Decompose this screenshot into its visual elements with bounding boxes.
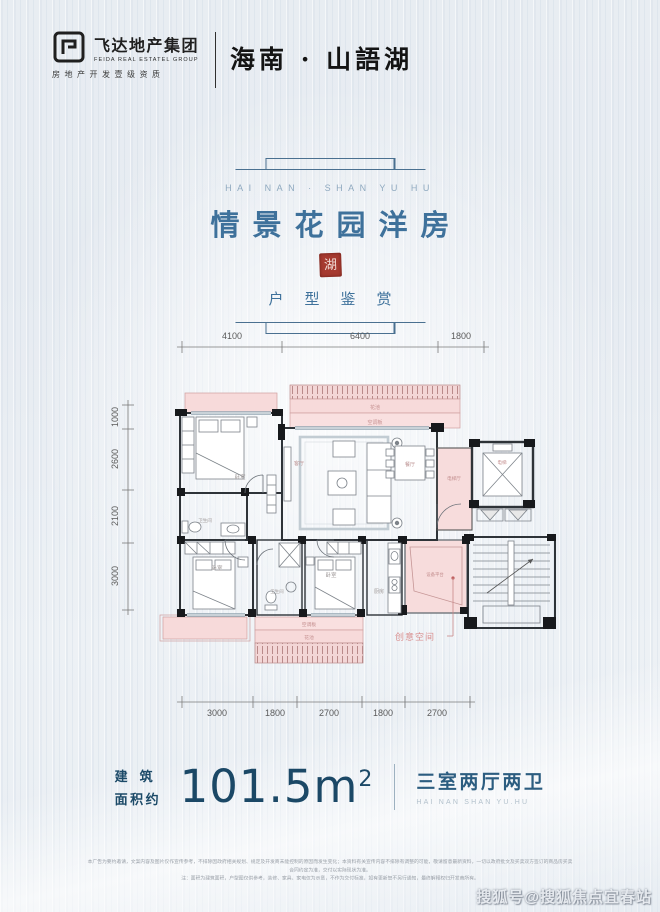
developer-name-en: FEIDA REAL ESTATEL GROUP	[94, 57, 199, 63]
creative-space-label: 创意空间	[395, 631, 435, 642]
spec-bar: 建筑 面积约 101.5m2 三室两厅两卫 HAI NAN SHAN YU.HU	[0, 760, 660, 813]
coffee-table-icon	[328, 471, 356, 495]
dim-left-2: 2600	[110, 449, 120, 469]
watermark: 搜狐号@搜狐焦点宜春站	[476, 886, 652, 907]
layout-type: 三室两厅两卫	[416, 767, 545, 794]
dim-bottom-4: 1800	[373, 708, 393, 718]
area-label-2: 面积约	[115, 789, 165, 808]
page-title: 情景花园洋房	[197, 202, 462, 244]
developer-logo-block: 飞达地产集团 FEIDA REAL ESTATEL GROUP 房地产开发壹级资…	[52, 30, 199, 80]
elevator-icon	[477, 444, 531, 521]
poster-page: 飞达地产集团 FEIDA REAL ESTATEL GROUP 房地产开发壹级资…	[0, 0, 660, 912]
bed-icon-2	[185, 542, 248, 609]
project-brand: 海南 · 山語湖	[230, 40, 413, 76]
room-label-elevator-hall: 电梯厅	[447, 475, 461, 482]
room-label-bedroom-2: 卧室	[211, 564, 223, 572]
disclaimer-line-2: 注：面积为建筑面积，户型图仅供参考，装修、家具、家电仅为示意，不作为交付标准，如…	[87, 875, 573, 883]
label-equipment-platform: 设备平台	[426, 571, 444, 578]
dim-left-1: 1000	[110, 407, 120, 427]
dim-bottom-2: 1800	[265, 708, 285, 718]
dim-bottom-1: 3000	[207, 708, 227, 718]
header-divider	[215, 32, 216, 88]
elevator-hall-zone	[437, 448, 472, 530]
room-label-bath-2: 卫生间	[270, 588, 283, 595]
spec-divider	[394, 764, 395, 810]
area-label-1: 建筑	[115, 766, 165, 785]
balcony-strip	[163, 617, 247, 639]
shoe-cabinet-icon	[267, 475, 276, 513]
bracket-ornament-top	[235, 158, 425, 170]
title-block: HAI NAN · SHAN YU HU 情景花园洋房 湖 户型鉴赏	[197, 158, 462, 334]
header: 飞达地产集团 FEIDA REAL ESTATEL GROUP 房地产开发壹级资…	[52, 30, 413, 88]
floor-plan: 4100 6400 1800 1000 2600 2100 3000 3000 …	[95, 325, 580, 750]
staircase-icon	[473, 541, 550, 623]
area-value: 101.5m2	[180, 760, 374, 813]
room-label-bedroom-1: 卧室	[234, 473, 246, 481]
top-hatched-strip	[290, 385, 460, 399]
room-label-living: 客厅	[294, 460, 304, 467]
title-caption-en: HAI NAN · SHAN YU HU	[197, 183, 462, 193]
kitchen-counter-icon	[388, 543, 401, 613]
furniture	[182, 417, 550, 623]
dim-left-3: 2100	[110, 506, 120, 526]
dim-left-4: 3000	[110, 566, 120, 586]
layout-block: 三室两厅两卫 HAI NAN SHAN YU.HU	[416, 767, 545, 806]
sofa-set-icon	[267, 437, 402, 529]
page-subtitle: 户型鉴赏	[197, 288, 462, 309]
area-sup: 2	[358, 767, 373, 792]
area-number: 101.5m	[180, 760, 359, 813]
dim-top-2: 6400	[350, 331, 370, 341]
bottom-hatched-strip	[255, 643, 363, 663]
strip-label-ac-panel-top: 空调板	[367, 419, 382, 426]
dim-bottom-3: 2700	[319, 708, 339, 718]
area-labels: 建筑 面积约	[115, 766, 165, 808]
dim-top-1: 4100	[222, 331, 242, 341]
room-label-dining: 餐厅	[405, 461, 415, 468]
strip-label-flower-bed-top: 花池	[370, 404, 380, 411]
bed-icon-1	[182, 417, 257, 479]
red-seal-icon: 湖	[319, 253, 342, 278]
disclaimer-line-1: 本广告为要约邀请，文案内容及图片仅作宣传参考，不排除因政府相关规划、规定及开发商…	[87, 858, 573, 875]
dim-bottom-5: 2700	[427, 708, 447, 718]
strip-label-flower-bed-bottom: 花池	[304, 634, 314, 641]
room-label-kitchen: 厨房	[374, 588, 384, 595]
disclaimer: 本广告为要约邀请，文案内容及图片仅作宣传参考，不排除因政府相关规划、规定及开发商…	[87, 858, 573, 883]
layout-type-en: HAI NAN SHAN YU.HU	[416, 799, 545, 806]
toilet-icon-2	[265, 543, 300, 610]
room-label-bath-1: 卫生间	[198, 517, 212, 524]
room-label-bedroom-3: 卧室	[325, 571, 337, 579]
strip-label-ac-panel-bottom: 空调板	[302, 621, 317, 628]
tv-cabinet-icon	[284, 447, 291, 501]
developer-certificate: 房地产开发壹级资质	[52, 69, 199, 80]
bay-window-strip	[185, 393, 277, 413]
room-label-elevator: 电梯	[497, 459, 507, 466]
feida-logo-icon	[52, 30, 86, 64]
dim-top-3: 1800	[451, 331, 471, 341]
developer-name: 飞达地产集团	[94, 32, 199, 56]
toilet-icon-1	[182, 521, 245, 536]
